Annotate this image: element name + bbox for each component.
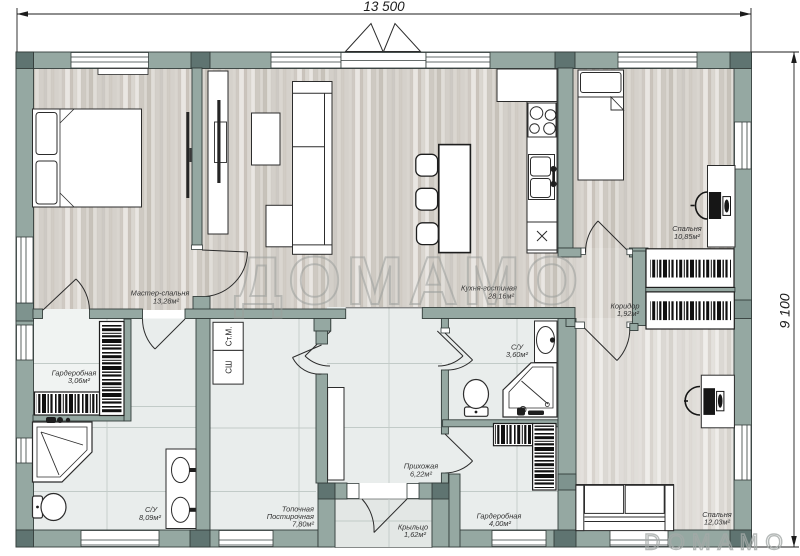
svg-text:3,06м²: 3,06м²: [68, 376, 90, 385]
svg-text:8,09м²: 8,09м²: [139, 513, 161, 522]
svg-text:СШ: СШ: [225, 361, 234, 374]
svg-text:6,22м²: 6,22м²: [410, 470, 432, 479]
svg-text:ДОМАМО: ДОМАМО: [234, 243, 584, 319]
svg-text:1,92м²: 1,92м²: [617, 309, 639, 318]
svg-text:DOMAMO: DOMAMO: [644, 530, 790, 555]
svg-text:13,28м²: 13,28м²: [153, 297, 180, 306]
svg-text:1,62м²: 1,62м²: [404, 530, 426, 539]
svg-text:13 500: 13 500: [363, 0, 405, 14]
svg-text:9 100: 9 100: [777, 293, 793, 328]
svg-text:3,60м²: 3,60м²: [506, 350, 528, 359]
svg-text:Ст.М.: Ст.М.: [225, 327, 234, 347]
svg-text:10,85м²: 10,85м²: [674, 232, 701, 241]
svg-text:4,00м²: 4,00м²: [489, 519, 511, 528]
svg-text:7,80м²: 7,80м²: [292, 520, 314, 529]
svg-text:12,03м²: 12,03м²: [704, 518, 731, 527]
